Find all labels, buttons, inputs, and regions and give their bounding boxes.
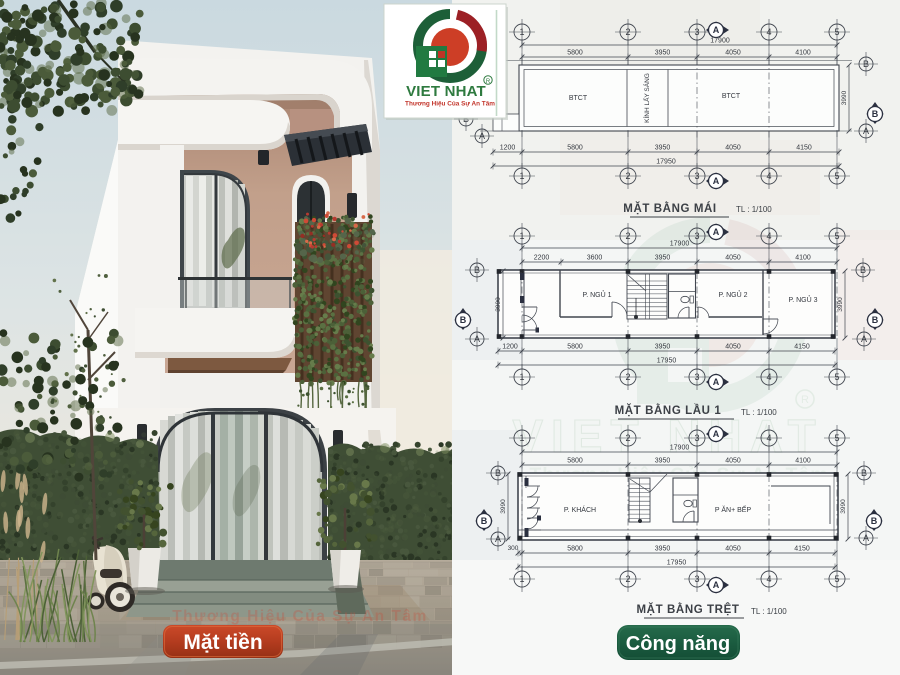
svg-text:A: A [713,176,720,186]
svg-text:5: 5 [834,171,839,181]
svg-text:1200: 1200 [502,344,518,351]
svg-text:A: A [861,334,867,344]
svg-text:2: 2 [625,171,630,181]
svg-text:300: 300 [508,545,519,552]
svg-text:Công năng: Công năng [626,633,730,655]
svg-text:1200: 1200 [500,145,516,152]
svg-text:1: 1 [519,372,524,382]
svg-text:5: 5 [834,574,839,584]
svg-text:1: 1 [519,574,524,584]
svg-text:4: 4 [766,433,771,443]
svg-text:MẶT BẰNG MÁI: MẶT BẰNG MÁI [623,202,716,215]
svg-text:1: 1 [519,231,524,241]
svg-text:3: 3 [694,372,699,382]
svg-text:5800: 5800 [567,344,583,351]
svg-text:Thương Hiệu Của Sự An Tâm: Thương Hiệu Của Sự An Tâm [172,608,428,625]
svg-text:2200: 2200 [534,255,550,262]
svg-text:3950: 3950 [655,255,671,262]
svg-text:3990: 3990 [840,499,847,514]
svg-text:17950: 17950 [667,560,687,567]
svg-text:B: B [495,468,501,478]
svg-text:BTCT: BTCT [569,95,588,102]
svg-text:B: B [871,516,878,526]
svg-text:3990: 3990 [500,499,507,514]
svg-text:4050: 4050 [725,145,741,152]
svg-text:A: A [474,334,480,344]
svg-text:4100: 4100 [795,458,811,465]
svg-text:BTCT: BTCT [722,93,741,100]
svg-text:3990: 3990 [837,297,844,312]
svg-text:3950: 3950 [655,145,671,152]
svg-text:Mặt tiền: Mặt tiền [183,631,262,654]
svg-text:B: B [872,109,879,119]
svg-text:B: B [474,265,480,275]
svg-text:4100: 4100 [795,255,811,262]
svg-text:2: 2 [625,574,630,584]
svg-text:3: 3 [694,231,699,241]
svg-text:P. KHÁCH: P. KHÁCH [564,505,596,514]
svg-text:2: 2 [625,231,630,241]
svg-text:3600: 3600 [587,255,603,262]
svg-text:5800: 5800 [567,50,583,57]
svg-text:4150: 4150 [796,145,812,152]
svg-text:5800: 5800 [567,546,583,553]
svg-text:17950: 17950 [656,159,676,166]
svg-text:MẶT BẰNG TRỆT: MẶT BẰNG TRỆT [637,603,740,616]
svg-text:A: A [863,126,869,136]
svg-text:MẶT BẰNG LẦU 1: MẶT BẰNG LẦU 1 [615,404,722,417]
svg-text:4050: 4050 [725,458,741,465]
svg-text:5: 5 [834,433,839,443]
svg-text:P. NGỦ 2: P. NGỦ 2 [718,290,747,299]
svg-text:Thương Hiệu Của Sự An Tâm: Thương Hiệu Của Sự An Tâm [405,101,495,108]
svg-text:17900: 17900 [670,445,690,452]
svg-text:A: A [479,131,485,141]
svg-text:3: 3 [694,171,699,181]
svg-text:4050: 4050 [725,255,741,262]
svg-text:3: 3 [694,27,699,37]
svg-text:5: 5 [834,27,839,37]
svg-text:5: 5 [834,372,839,382]
svg-text:5: 5 [834,231,839,241]
svg-text:TL : 1/100: TL : 1/100 [736,205,772,214]
svg-text:5800: 5800 [567,145,583,152]
svg-text:4050: 4050 [725,546,741,553]
svg-text:1: 1 [519,171,524,181]
svg-text:3: 3 [694,574,699,584]
svg-text:TL : 1/100: TL : 1/100 [751,607,787,616]
svg-text:1: 1 [519,433,524,443]
svg-text:4150: 4150 [794,344,810,351]
svg-text:2: 2 [625,27,630,37]
svg-text:P. NGỦ 1: P. NGỦ 1 [582,290,611,299]
svg-text:A: A [713,580,720,590]
svg-text:17900: 17900 [670,241,690,248]
svg-text:17950: 17950 [657,358,677,365]
svg-text:A: A [495,534,501,544]
svg-text:4150: 4150 [794,546,810,553]
svg-text:A: A [713,227,720,237]
svg-text:B: B [860,265,866,275]
svg-text:4: 4 [766,171,771,181]
svg-text:3950: 3950 [655,50,671,57]
svg-text:VIET NHAT: VIET NHAT [406,83,486,100]
svg-text:A: A [863,533,869,543]
svg-text:R: R [801,394,809,406]
svg-text:5800: 5800 [567,458,583,465]
svg-text:A: A [713,25,720,35]
svg-text:A: A [713,429,720,439]
svg-text:B: B [861,468,867,478]
svg-text:4100: 4100 [795,50,811,57]
svg-text:3990: 3990 [841,90,848,105]
svg-text:1: 1 [519,27,524,37]
svg-text:TL : 1/100: TL : 1/100 [741,408,777,417]
svg-text:R: R [486,79,491,85]
svg-text:P. NGỦ 3: P. NGỦ 3 [788,295,817,304]
svg-text:B: B [481,516,488,526]
svg-text:3950: 3950 [655,344,671,351]
svg-text:3950: 3950 [655,546,671,553]
svg-text:3: 3 [694,433,699,443]
svg-text:B: B [863,59,869,69]
svg-text:B: B [872,315,879,325]
svg-text:4050: 4050 [725,50,741,57]
svg-text:A: A [713,377,720,387]
svg-text:2: 2 [625,372,630,382]
svg-text:3950: 3950 [655,458,671,465]
svg-text:2: 2 [625,433,630,443]
svg-text:17900: 17900 [710,38,730,45]
svg-text:4: 4 [766,27,771,37]
svg-text:4: 4 [766,231,771,241]
svg-text:4: 4 [766,372,771,382]
svg-text:B: B [460,315,467,325]
svg-text:4: 4 [766,574,771,584]
svg-text:4050: 4050 [725,344,741,351]
svg-text:3990: 3990 [495,297,502,312]
